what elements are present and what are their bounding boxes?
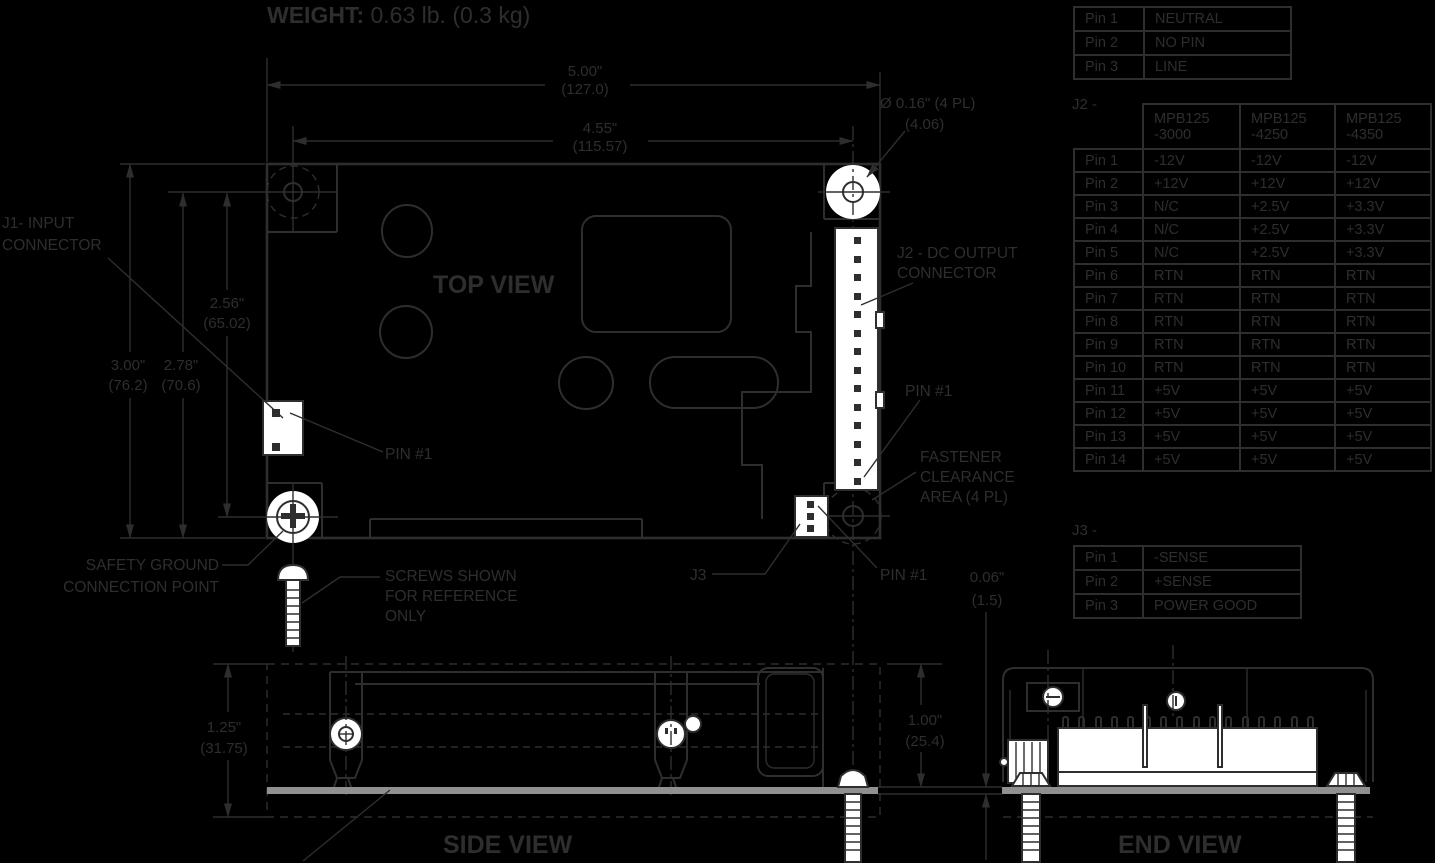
column-header: MPB125-4350 xyxy=(1335,104,1431,149)
dim-edgehole-mm: (70.6) xyxy=(161,377,200,394)
table-row: Pin 8RTNRTNRTN xyxy=(1074,310,1431,333)
screws-label-line1: SCREWS SHOWN xyxy=(385,568,517,585)
dim-edgehole-in: 2.78" xyxy=(164,357,199,374)
table-cell: Pin 1 xyxy=(1074,7,1144,31)
board-outline xyxy=(267,164,880,538)
side-mounting-screw xyxy=(838,770,868,862)
table-row: Pin 1-12V-12V-12V xyxy=(1074,149,1431,172)
ac-input-table: Pin 1NEUTRAL Pin 2NO PIN Pin 3LINE xyxy=(1073,6,1292,80)
table-row: Pin 6RTNRTNRTN xyxy=(1074,264,1431,287)
table-row: Pin 5N/C+2.5V+3.3V xyxy=(1074,241,1431,264)
dim-end-in: 1.00" xyxy=(908,712,943,729)
table-row: Pin 2+12V+12V+12V xyxy=(1074,172,1431,195)
capacitor-1 xyxy=(382,205,432,257)
screws-label-line2: FOR REFERENCE xyxy=(385,588,518,605)
dim-holespanv-in: 2.56" xyxy=(210,295,245,312)
side-view-drawing: 1.25" (31.75) 1.00" (25.4) SIDE VIEW xyxy=(200,656,1002,862)
table-cell: +SENSE xyxy=(1143,570,1301,594)
dim-holespan-mm: (115.57) xyxy=(573,138,628,155)
dim-width-mm: (127.0) xyxy=(561,81,609,98)
column-header: MPB125-4250 xyxy=(1240,104,1335,149)
table-row: Pin 9RTNRTNRTN xyxy=(1074,333,1431,356)
component-stadium xyxy=(650,357,778,408)
dim-pcb-mm: (1.5) xyxy=(972,592,1003,609)
side-view-title: SIDE VIEW xyxy=(443,831,573,859)
table-row: Pin 4N/C+2.5V+3.3V xyxy=(1074,218,1431,241)
j2-output-connector xyxy=(835,228,884,490)
table-cell: -SENSE xyxy=(1143,546,1301,570)
end-view-drawing: END VIEW xyxy=(1000,645,1373,862)
table-row: Pin 14+5V+5V+5V xyxy=(1074,448,1431,471)
side-bracket-right xyxy=(655,656,687,798)
top-view-title: TOP VIEW xyxy=(433,271,555,299)
capacitor-3 xyxy=(559,357,613,409)
column-header: MPB125-3000 xyxy=(1143,104,1240,149)
pcb-bar-side xyxy=(267,787,878,794)
fastener-label-line3: AREA (4 PL) xyxy=(920,489,1008,506)
pin1-j1-label: PIN #1 xyxy=(385,446,432,463)
pin1-j2-label: PIN #1 xyxy=(905,383,952,400)
safety-ground-screw xyxy=(218,483,338,652)
table-cell: Pin 3 xyxy=(1074,55,1144,79)
reference-screw xyxy=(278,565,308,646)
table-row: Pin 11+5V+5V+5V xyxy=(1074,379,1431,402)
table-cell: Pin 3 xyxy=(1074,594,1143,618)
table-cell: LINE xyxy=(1144,55,1291,79)
safety-label-line2: CONNECTION POINT xyxy=(63,579,219,596)
weight-label: WEIGHT: xyxy=(267,2,364,28)
end-output-connector xyxy=(1058,705,1317,786)
j2-pinout-table: MPB125-3000 MPB125-4250 MPB125-4350 Pin … xyxy=(1073,103,1432,472)
table-cell: NO PIN xyxy=(1144,31,1291,55)
j3-table-label: J3 - xyxy=(1072,522,1097,539)
dim-hole-dia-mm: (4.06) xyxy=(905,116,944,133)
pin1-j3-label: PIN #1 xyxy=(880,567,927,584)
table-row: Pin 7RTNRTNRTN xyxy=(1074,287,1431,310)
capacitor-2 xyxy=(380,306,432,358)
table-cell: NEUTRAL xyxy=(1144,7,1291,31)
dim-height-in: 3.00" xyxy=(111,357,146,374)
dim-side-in: 1.25" xyxy=(207,719,242,736)
side-small-screw xyxy=(685,716,701,732)
table-cell: POWER GOOD xyxy=(1143,594,1301,618)
table-row: Pin 12+5V+5V+5V xyxy=(1074,402,1431,425)
j1-label-line2: CONNECTOR xyxy=(2,237,102,254)
fastener-top-left xyxy=(168,158,338,232)
dim-end-mm: (25.4) xyxy=(905,733,944,750)
j3-pinout-table: Pin 1-SENSE Pin 2+SENSE Pin 3POWER GOOD xyxy=(1073,545,1302,619)
side-end-bracket xyxy=(758,668,823,776)
dim-holespanv-mm: (65.02) xyxy=(203,315,251,332)
bottom-tab xyxy=(370,519,642,538)
j2-label-line1: J2 - DC OUTPUT xyxy=(897,245,1018,262)
table-cell: Pin 2 xyxy=(1074,31,1144,55)
dim-pcb-in: 0.06" xyxy=(970,569,1005,586)
dim-height-mm: (76.2) xyxy=(108,377,147,394)
table-cell: Pin 2 xyxy=(1074,570,1143,594)
side-bracket-left xyxy=(330,656,362,798)
table-row: Pin 3N/C+2.5V+3.3V xyxy=(1074,195,1431,218)
dim-width-in: 5.00" xyxy=(568,63,603,80)
j3-connector xyxy=(795,496,828,537)
dim-side-mm: (31.75) xyxy=(200,740,248,757)
j2-label-line2: CONNECTOR xyxy=(897,265,997,282)
pcb-bar-end xyxy=(1002,787,1370,794)
table-cell: Pin 1 xyxy=(1074,546,1143,570)
weight-note: WEIGHT: 0.63 lb. (0.3 kg) xyxy=(267,2,530,29)
table-row: Pin 13+5V+5V+5V xyxy=(1074,425,1431,448)
drawing-canvas: TOP VIEW 5.00" (127.0) 4.55" (115.57) Ø … xyxy=(0,0,1435,863)
safety-label-line1: SAFETY GROUND xyxy=(86,557,219,574)
top-view-drawing: TOP VIEW xyxy=(168,126,890,862)
transformer xyxy=(582,216,731,332)
j1-label-line1: J1- INPUT xyxy=(2,215,75,232)
table-row: Pin 10RTNRTNRTN xyxy=(1074,356,1431,379)
dim-holespan-in: 4.55" xyxy=(583,120,618,137)
weight-value: 0.63 lb. (0.3 kg) xyxy=(371,2,531,28)
end-view-title: END VIEW xyxy=(1118,831,1242,859)
dim-hole-dia: Ø 0.16" (4 PL) xyxy=(880,95,975,112)
screws-label-line3: ONLY xyxy=(385,608,426,625)
j3-label: J3 xyxy=(690,567,706,584)
fastener-label-line1: FASTENER xyxy=(920,449,1002,466)
j1-input-connector xyxy=(263,401,303,455)
fastener-label-line2: CLEARANCE xyxy=(920,469,1015,486)
